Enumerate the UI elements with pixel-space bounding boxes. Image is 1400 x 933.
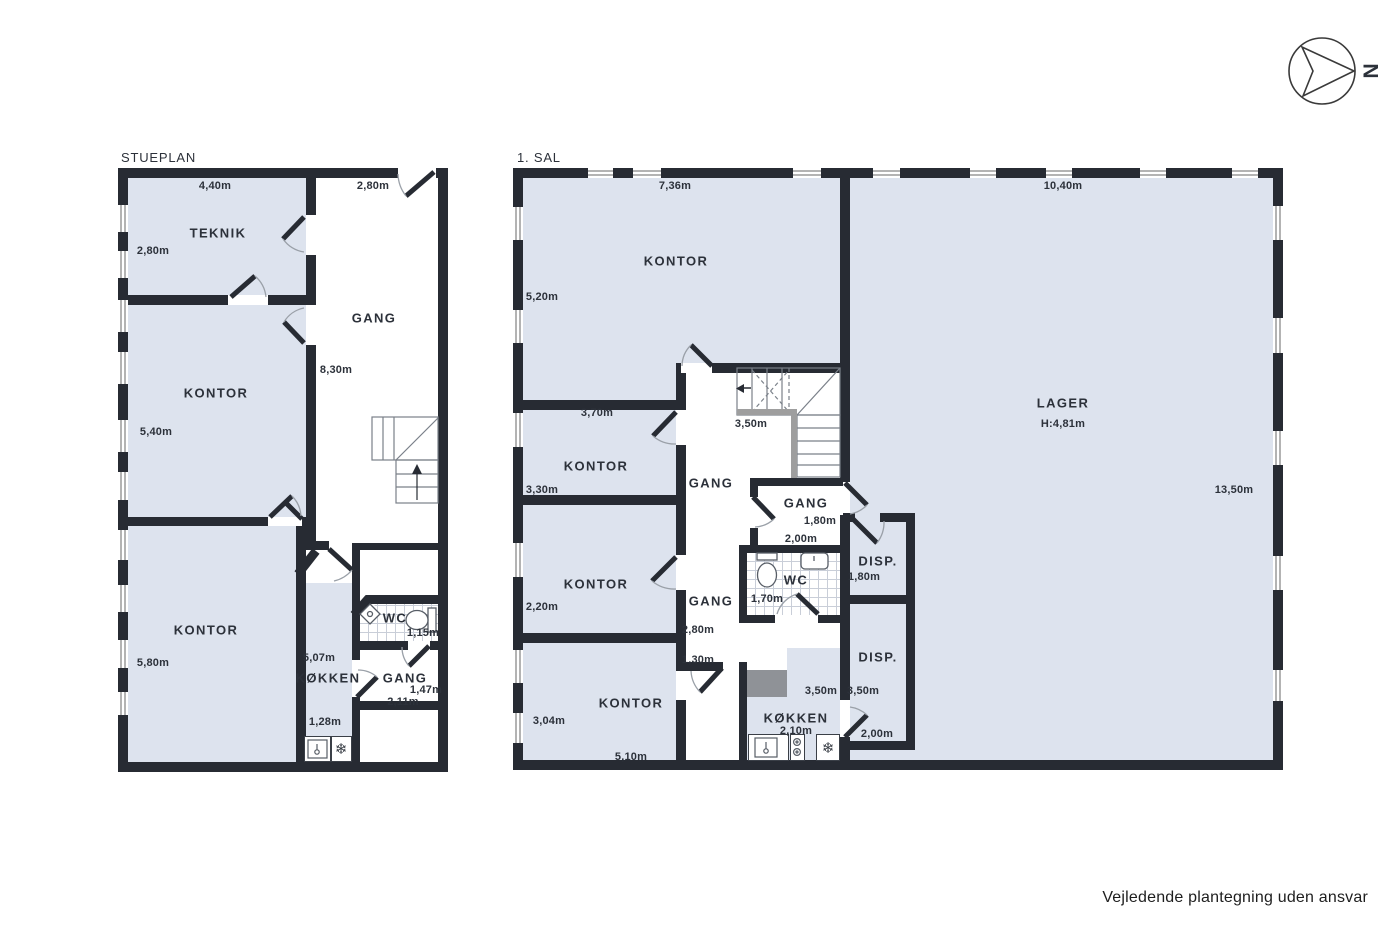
dim-label: 3,50m xyxy=(735,418,767,430)
floorplan-page: STUEPLAN 1. SAL xyxy=(0,0,1400,933)
dim-label: 5,10m xyxy=(615,751,647,763)
dim-label: 2,80m xyxy=(137,245,169,257)
dim-label: 7,36m xyxy=(659,180,691,192)
toilet-icon xyxy=(757,553,777,587)
room-label-teknik: TEKNIK xyxy=(190,226,247,241)
room-label-kontor: KONTOR xyxy=(174,623,239,638)
room-label-gang: GANG xyxy=(784,496,829,511)
diagonal-wall xyxy=(298,551,369,615)
dim-label: 1,47m xyxy=(410,684,442,696)
room-label-gang: GANG xyxy=(352,311,397,326)
dim-label: 2,20m xyxy=(526,601,558,613)
fridge-snowflake-icon: ❄ xyxy=(822,740,835,757)
room-label-disp: DISP. xyxy=(858,650,897,665)
dim-label: 1,15m xyxy=(407,627,439,639)
dim-label: 13,50m xyxy=(1215,484,1254,496)
dim-label: 1,70m xyxy=(751,593,783,605)
room-label-kontor: KONTOR xyxy=(599,696,664,711)
room-label-lager: LAGER xyxy=(1037,396,1090,411)
dim-label: 2,80m xyxy=(682,624,714,636)
room-label-kokken: KØKKEN xyxy=(764,711,829,726)
room-label-kontor: KONTOR xyxy=(564,459,629,474)
dim-label: 3,30m xyxy=(526,484,558,496)
room-label-gang: GANG xyxy=(689,594,734,609)
dim-label: 10,40m xyxy=(1044,180,1083,192)
room-label-kokken: KØKKEN xyxy=(296,671,361,686)
compass-icon xyxy=(1289,38,1355,104)
room-label-gang: GANG xyxy=(689,476,734,491)
dim-label: 1,80m xyxy=(804,515,836,527)
dim-label: 1,30m xyxy=(682,654,714,666)
dim-label: 4,40m xyxy=(199,180,231,192)
dim-label: 5,80m xyxy=(137,657,169,669)
room-label-kontor: KONTOR xyxy=(564,577,629,592)
dim-label: 2,80m xyxy=(357,180,389,192)
room-label-disp: DISP. xyxy=(858,554,897,569)
dim-label: 1,28m xyxy=(309,716,341,728)
room-label-kontor: KONTOR xyxy=(644,254,709,269)
sink-icon xyxy=(801,553,828,569)
stove-burners-icon xyxy=(794,739,801,756)
room-label-wc: WC xyxy=(383,611,407,626)
dim-label: 2,00m xyxy=(785,533,817,545)
sink-icon xyxy=(755,738,777,757)
dim-label: 5,40m xyxy=(140,426,172,438)
fridge-snowflake-icon: ❄ xyxy=(335,741,348,758)
dim-label: 5,07m xyxy=(303,652,335,664)
staircase-stueplan xyxy=(372,417,438,503)
dim-label: 5,20m xyxy=(526,291,558,303)
plan-linework-overlay: ❄ xyxy=(0,0,1400,933)
dim-label: 2,10m xyxy=(780,725,812,737)
compass-north-label: N xyxy=(1358,63,1382,78)
room-label-wc: WC xyxy=(784,573,808,588)
dim-label: 3,50m xyxy=(847,685,879,697)
door xyxy=(652,345,884,737)
room-label-kontor: KONTOR xyxy=(184,386,249,401)
dim-label: 3,70m xyxy=(581,407,613,419)
dim-label: 2,11m xyxy=(387,696,419,708)
sink-icon xyxy=(308,740,327,758)
dim-label: 3,50m xyxy=(805,685,837,697)
dim-label: 2,00m xyxy=(861,728,893,740)
dim-label: 3,04m xyxy=(533,715,565,727)
dim-label: H:4,81m xyxy=(1041,418,1085,430)
dim-label: 8,30m xyxy=(320,364,352,376)
dim-label: 1,80m xyxy=(848,571,880,583)
